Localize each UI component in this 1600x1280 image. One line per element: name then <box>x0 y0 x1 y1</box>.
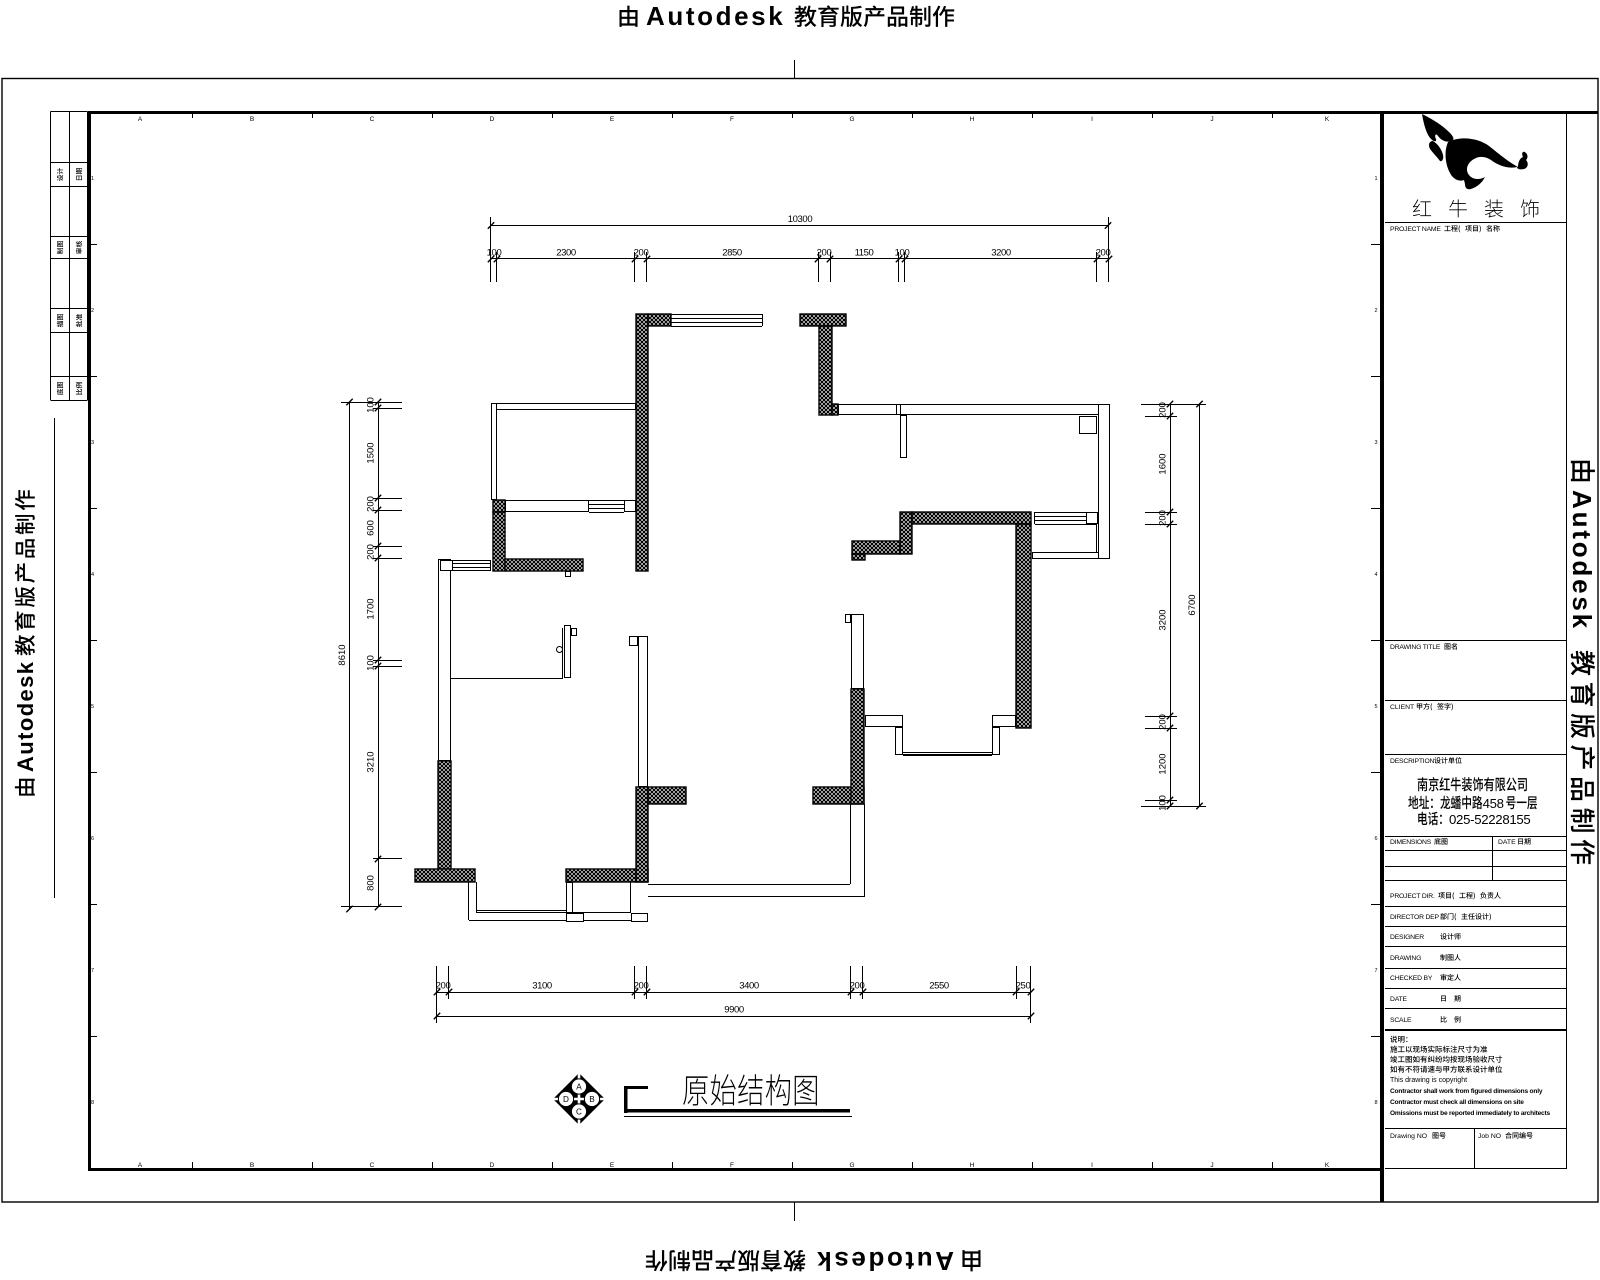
svg-text:J: J <box>1210 1162 1213 1169</box>
svg-text:200: 200 <box>366 496 377 512</box>
svg-text:100: 100 <box>1158 795 1169 811</box>
svg-text:1200: 1200 <box>1158 753 1169 774</box>
svg-text:200: 200 <box>817 248 832 259</box>
svg-text:100: 100 <box>895 248 910 259</box>
svg-text:2550: 2550 <box>929 981 949 992</box>
svg-text:E: E <box>610 1162 615 1169</box>
svg-text:C: C <box>370 1162 375 1169</box>
svg-text:200: 200 <box>1158 510 1169 526</box>
svg-text:B: B <box>589 1095 595 1104</box>
svg-text:H: H <box>970 116 975 123</box>
svg-text:8: 8 <box>91 1100 94 1106</box>
svg-text:7: 7 <box>91 968 94 974</box>
svg-text:CLIENT: CLIENT <box>1390 704 1414 711</box>
svg-text:DATE: DATE <box>1390 996 1407 1003</box>
svg-text:J: J <box>1210 116 1213 123</box>
svg-text:I: I <box>1091 116 1093 123</box>
svg-text:A: A <box>138 116 143 123</box>
svg-text:D: D <box>563 1095 569 1104</box>
svg-text:6700: 6700 <box>1187 594 1198 615</box>
svg-text:DIRECTOR DEP: DIRECTOR DEP <box>1390 914 1440 921</box>
svg-text:10300: 10300 <box>788 214 813 225</box>
svg-text:3100: 3100 <box>532 981 552 992</box>
svg-text:C: C <box>370 116 375 123</box>
svg-text:DIMENSIONS: DIMENSIONS <box>1390 839 1432 846</box>
svg-text:F: F <box>730 1162 734 1169</box>
svg-text:2: 2 <box>91 308 94 314</box>
svg-text:4: 4 <box>1374 572 1377 578</box>
svg-text:CHECKED BY: CHECKED BY <box>1390 975 1433 982</box>
svg-text:200: 200 <box>634 981 649 992</box>
svg-text:100: 100 <box>366 397 377 413</box>
svg-text:1150: 1150 <box>855 248 874 259</box>
svg-text:200: 200 <box>850 981 865 992</box>
svg-text:Drawing NO: Drawing NO <box>1390 1133 1427 1140</box>
svg-text:E: E <box>610 116 615 123</box>
svg-text:DATE: DATE <box>1498 839 1516 846</box>
svg-text:D: D <box>490 1162 495 1169</box>
svg-text:200: 200 <box>1096 248 1111 259</box>
svg-text:G: G <box>849 1162 854 1169</box>
svg-text:200: 200 <box>1158 714 1169 730</box>
svg-text:H: H <box>970 1162 975 1169</box>
svg-text:Omissions must be reported imm: Omissions must be reported immediately t… <box>1390 1110 1551 1117</box>
svg-text:D: D <box>490 116 495 123</box>
svg-text:6: 6 <box>1374 836 1377 842</box>
svg-text:5: 5 <box>1374 704 1377 710</box>
svg-text:250: 250 <box>1016 981 1031 992</box>
svg-text:3200: 3200 <box>1158 609 1169 630</box>
svg-text:1500: 1500 <box>366 442 377 463</box>
svg-text:3200: 3200 <box>991 248 1011 259</box>
svg-text:200: 200 <box>634 248 649 259</box>
svg-text:100: 100 <box>487 248 502 259</box>
svg-text:DESIGNER: DESIGNER <box>1390 934 1424 941</box>
svg-text:200: 200 <box>366 544 377 560</box>
svg-text:Autodesk: Autodesk <box>646 1 785 31</box>
svg-text:3: 3 <box>1374 440 1377 446</box>
svg-text:7: 7 <box>1374 968 1377 974</box>
svg-text:B: B <box>250 1162 254 1169</box>
svg-text:1700: 1700 <box>366 598 377 619</box>
svg-text:DESCRIPTION: DESCRIPTION <box>1390 758 1435 765</box>
svg-text:This drawing is copyright: This drawing is copyright <box>1390 1077 1467 1084</box>
svg-text:3400: 3400 <box>739 981 759 992</box>
svg-text:Autodesk: Autodesk <box>13 661 38 772</box>
svg-text:1: 1 <box>1374 176 1377 182</box>
svg-text:SCALE: SCALE <box>1390 1017 1412 1024</box>
svg-text:G: G <box>849 116 854 123</box>
svg-text:Contractor must check all dime: Contractor must check all dimensions on … <box>1390 1099 1524 1106</box>
svg-text:3210: 3210 <box>366 751 377 772</box>
svg-text:DRAWING: DRAWING <box>1390 955 1421 962</box>
svg-text:2: 2 <box>1374 308 1377 314</box>
svg-text:025-52228155: 025-52228155 <box>1449 812 1530 827</box>
svg-text:PROJECT DIR.: PROJECT DIR. <box>1390 893 1435 900</box>
svg-text:Job NO: Job NO <box>1478 1133 1501 1140</box>
svg-text:4: 4 <box>91 572 94 578</box>
svg-text:PROJECT NAME: PROJECT NAME <box>1390 226 1441 233</box>
svg-text:Contractor shall work from fig: Contractor shall work from figured dimen… <box>1390 1088 1543 1095</box>
svg-text:K: K <box>1325 1162 1330 1169</box>
svg-text:1: 1 <box>91 176 94 182</box>
svg-text:5: 5 <box>91 704 94 710</box>
svg-text:Autodesk: Autodesk <box>1567 490 1597 631</box>
svg-text:DRAWING TITLE: DRAWING TITLE <box>1390 644 1441 651</box>
svg-text:2850: 2850 <box>722 248 742 259</box>
svg-text:458: 458 <box>1483 796 1504 811</box>
svg-text:200: 200 <box>436 981 451 992</box>
svg-text:600: 600 <box>366 520 377 536</box>
svg-text:K: K <box>1325 116 1330 123</box>
svg-text:800: 800 <box>366 875 377 891</box>
svg-text:200: 200 <box>1158 402 1169 418</box>
svg-text:I: I <box>1091 1162 1093 1169</box>
svg-text:9900: 9900 <box>724 1005 744 1016</box>
svg-text:8: 8 <box>1374 1100 1377 1106</box>
svg-text:B: B <box>250 116 254 123</box>
svg-text:C: C <box>576 1108 582 1117</box>
svg-text:A: A <box>576 1083 582 1092</box>
svg-text:6: 6 <box>91 836 94 842</box>
svg-text:100: 100 <box>366 655 377 671</box>
svg-text:1600: 1600 <box>1158 453 1169 474</box>
svg-text:Autodesk: Autodesk <box>815 1246 954 1276</box>
svg-text:A: A <box>138 1162 143 1169</box>
svg-text:F: F <box>730 116 734 123</box>
svg-text:3: 3 <box>91 440 94 446</box>
svg-text:2300: 2300 <box>556 248 576 259</box>
svg-text:8610: 8610 <box>337 644 348 665</box>
